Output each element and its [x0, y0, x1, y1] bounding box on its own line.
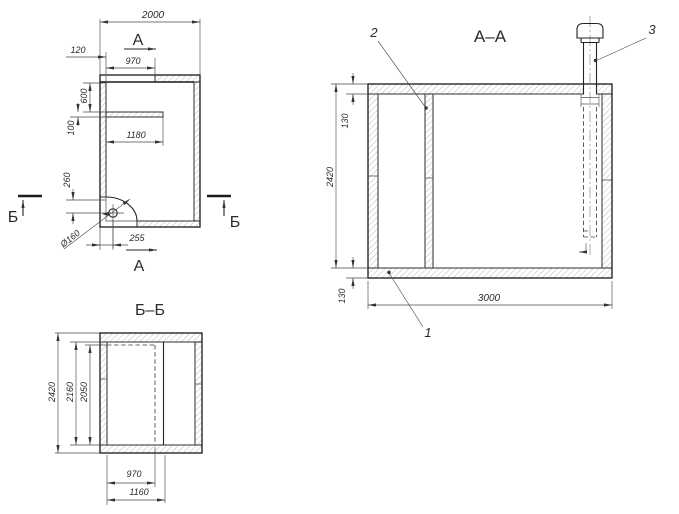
dim-text-970-plan: 970: [125, 56, 140, 66]
dim-text-120: 120: [70, 45, 85, 55]
section-bb-title: Б–Б: [135, 302, 165, 319]
dim-text-aa-130-bottom: 130: [337, 288, 347, 303]
callout-3-number: 3: [648, 22, 656, 37]
section-aa-title: А–А: [474, 27, 507, 46]
callout-1-dot: [387, 271, 390, 274]
callout-2-number: 2: [369, 25, 378, 40]
dim-text-255: 255: [128, 233, 145, 243]
dim-text-bb-2420: 2420: [47, 382, 57, 403]
dim-text-aa-130-top: 130: [340, 113, 350, 128]
dim-text-600: 600: [79, 88, 89, 103]
dim-text-aa-2420: 2420: [325, 167, 335, 188]
section-letter-b-left: Б: [8, 209, 19, 226]
section-letter-a-bottom: А: [134, 258, 145, 275]
dim-text-aa-3000: 3000: [478, 293, 501, 304]
bb-floor: [100, 445, 202, 453]
bb-left-wall: [100, 342, 107, 445]
dim-text-bb-1160: 1160: [129, 487, 148, 497]
aa-ceiling-left: [368, 84, 584, 94]
plan-right-wall: [194, 82, 200, 221]
dim-text-bb-2050: 2050: [79, 382, 89, 403]
dim-text-100: 100: [66, 120, 76, 135]
bb-right-wall: [195, 342, 202, 445]
technical-drawing: 2000 А 120 970 600 1: [0, 0, 679, 514]
plan-bottom-wall: [137, 221, 200, 227]
dim-text-1180: 1180: [126, 130, 145, 140]
plan-partition-wall: [106, 112, 163, 117]
dim-text-2000: 2000: [141, 10, 165, 21]
bb-ceiling: [100, 333, 202, 342]
callout-1-number: 1: [424, 325, 431, 340]
aa-partition-wall: [425, 94, 433, 268]
callout-3-dot: [594, 59, 597, 62]
aa-left-wall: [368, 94, 378, 268]
dim-text-bb-2160: 2160: [65, 382, 75, 403]
drawing-canvas: 2000 А 120 970 600 1: [0, 0, 679, 514]
section-letter-a-top: А: [133, 32, 144, 49]
aa-ceiling-right: [597, 84, 613, 94]
plan-left-wall: [100, 82, 106, 197]
aa-floor: [368, 268, 612, 278]
callout-2-dot: [424, 106, 427, 109]
dim-text-260: 260: [62, 172, 72, 188]
section-letter-b-right: Б: [230, 214, 241, 231]
plan-top-wall: [155, 75, 200, 82]
dim-text-bb-970: 970: [126, 469, 141, 479]
aa-right-wall: [602, 94, 612, 268]
